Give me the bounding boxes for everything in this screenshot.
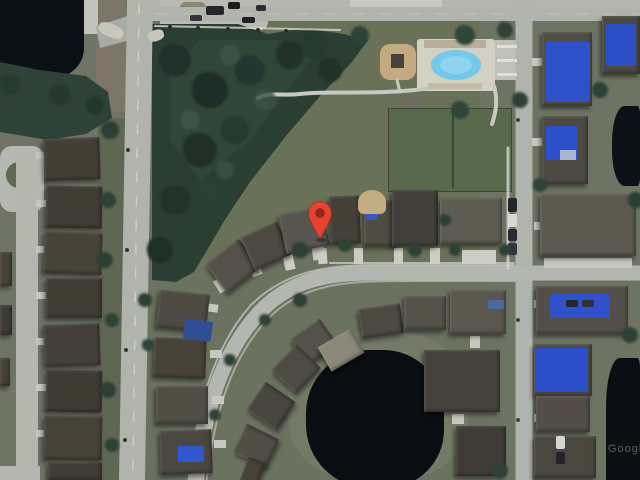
pin-shadow [316,238,326,242]
location-pin[interactable] [309,202,332,239]
marker-layer [0,0,640,480]
screenshot: Google [0,0,640,480]
location-pin-dot [315,208,325,218]
map-watermark: Google [608,443,640,455]
